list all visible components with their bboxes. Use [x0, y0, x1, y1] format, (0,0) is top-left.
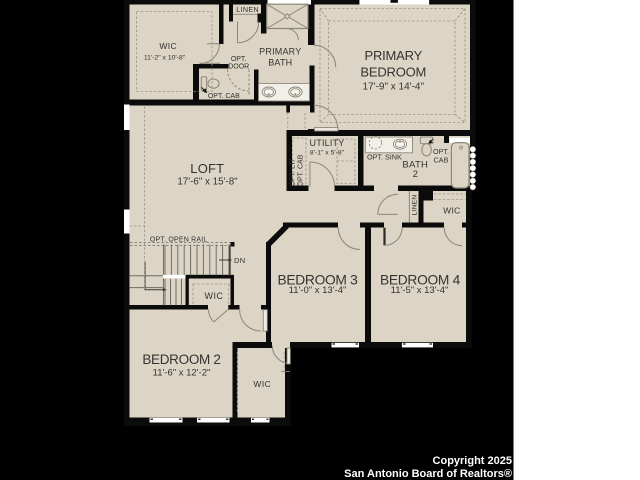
- svg-text:PRIMARY: PRIMARY: [364, 48, 422, 63]
- svg-text:BEDROOM 2: BEDROOM 2: [142, 352, 220, 367]
- svg-text:CAB: CAB: [434, 156, 449, 165]
- svg-text:OPT. OPEN RAIL: OPT. OPEN RAIL: [150, 236, 208, 243]
- svg-text:OPT. LT/: OPT. LT/: [290, 159, 297, 186]
- svg-text:LINEN: LINEN: [411, 194, 418, 215]
- svg-text:2: 2: [413, 169, 418, 180]
- svg-text:DN: DN: [234, 256, 245, 265]
- svg-text:WIC: WIC: [443, 206, 460, 216]
- svg-text:PRIMARY: PRIMARY: [259, 47, 301, 57]
- svg-text:8'-1" x 5'-8": 8'-1" x 5'-8": [310, 149, 345, 156]
- svg-text:OPT.: OPT.: [231, 56, 247, 63]
- svg-text:BEDROOM: BEDROOM: [360, 64, 426, 79]
- svg-text:San Antonio Board of Realtors®: San Antonio Board of Realtors®: [344, 468, 512, 480]
- svg-text:11'-0" x 13'-4": 11'-0" x 13'-4": [289, 285, 347, 296]
- svg-text:BATH: BATH: [268, 57, 292, 67]
- svg-text:11'-5" x 13'-4": 11'-5" x 13'-4": [391, 285, 449, 296]
- svg-text:OPT. SINK: OPT. SINK: [367, 153, 402, 162]
- svg-text:WIC: WIC: [253, 379, 271, 389]
- svg-text:OPT.: OPT.: [433, 147, 449, 156]
- svg-text:DOOR: DOOR: [228, 64, 249, 71]
- svg-text:UTILITY: UTILITY: [310, 138, 345, 148]
- svg-text:WIC: WIC: [159, 41, 177, 51]
- svg-text:LOFT: LOFT: [190, 161, 224, 176]
- svg-text:LINEN: LINEN: [236, 5, 259, 14]
- svg-text:11'-6" x 12'-2": 11'-6" x 12'-2": [153, 367, 211, 378]
- svg-text:17'-6" x 15'-8": 17'-6" x 15'-8": [177, 176, 238, 187]
- svg-text:WIC: WIC: [205, 291, 224, 301]
- svg-text:Copyright 2025: Copyright 2025: [433, 455, 512, 467]
- svg-text:OPT. CAB: OPT. CAB: [208, 93, 240, 100]
- svg-text:11'-2" x 10'-8": 11'-2" x 10'-8": [144, 55, 186, 62]
- svg-text:OPT. CAB: OPT. CAB: [298, 154, 305, 186]
- svg-text:17'-9" x 14'-4": 17'-9" x 14'-4": [363, 82, 425, 93]
